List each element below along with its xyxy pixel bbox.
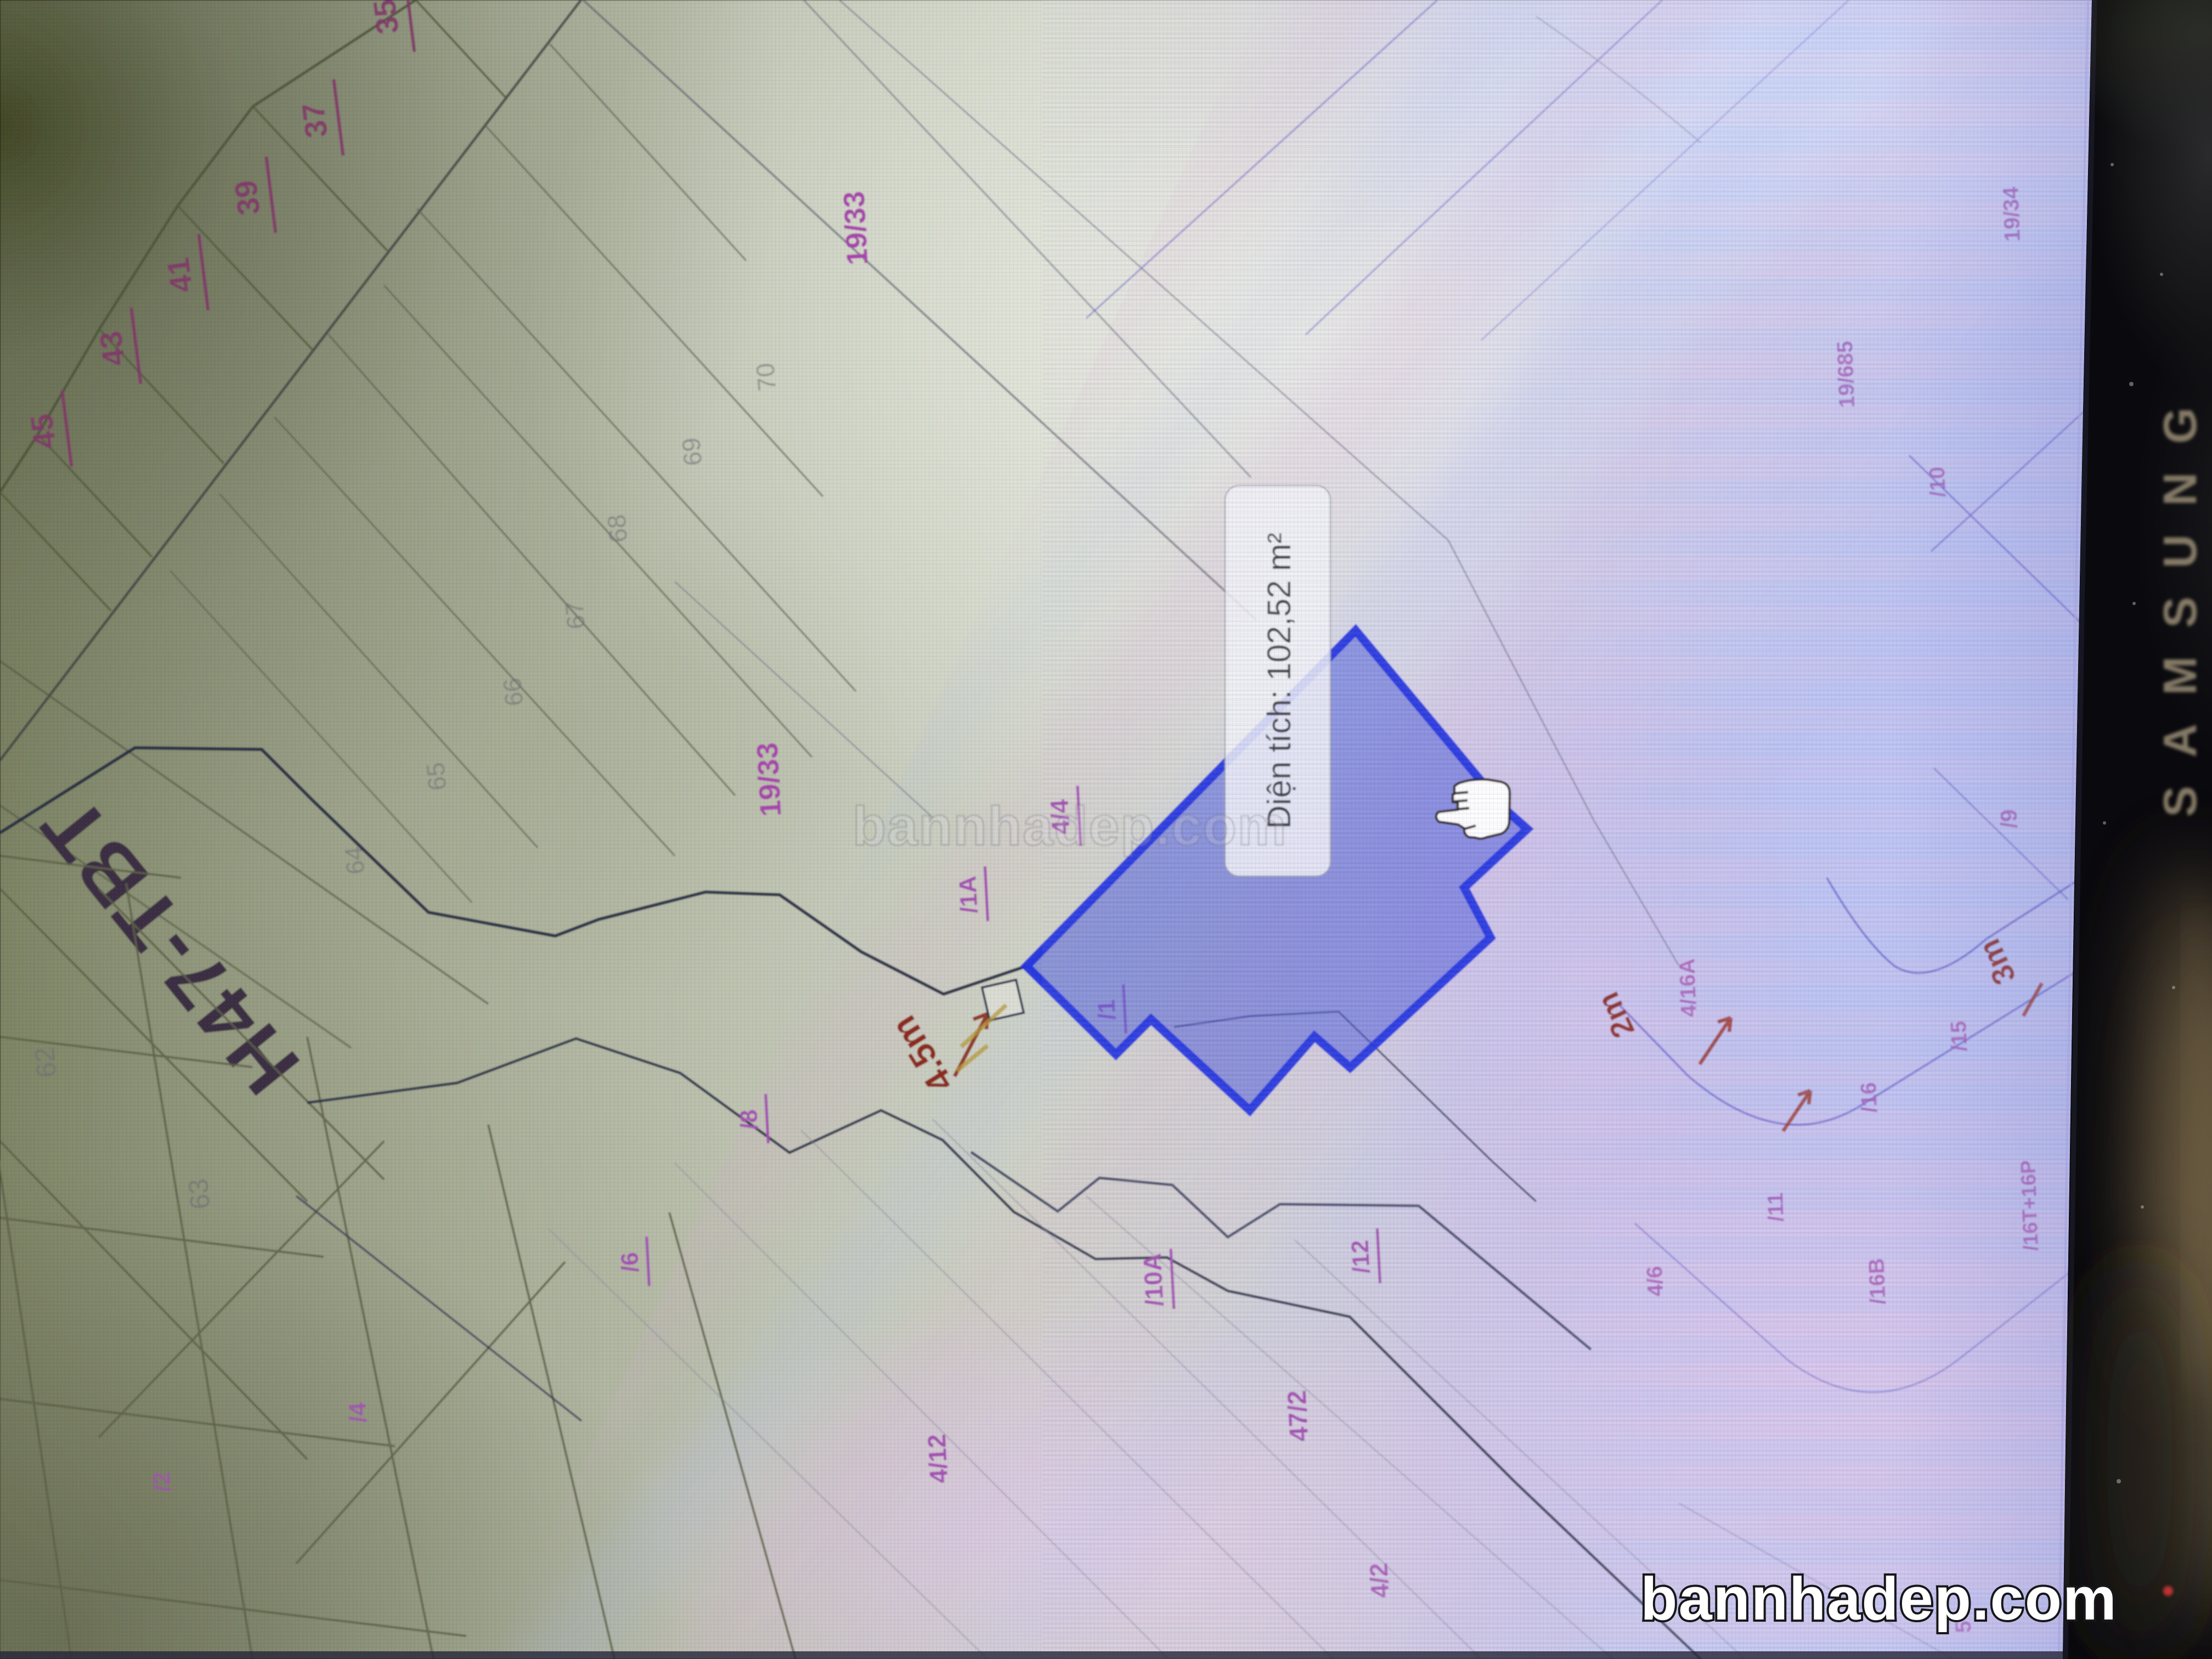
svg-text:bannhadep.com: bannhadep.com bbox=[1640, 1565, 2117, 1633]
svg-text:SAMSUNG: SAMSUNG bbox=[2154, 379, 2207, 817]
